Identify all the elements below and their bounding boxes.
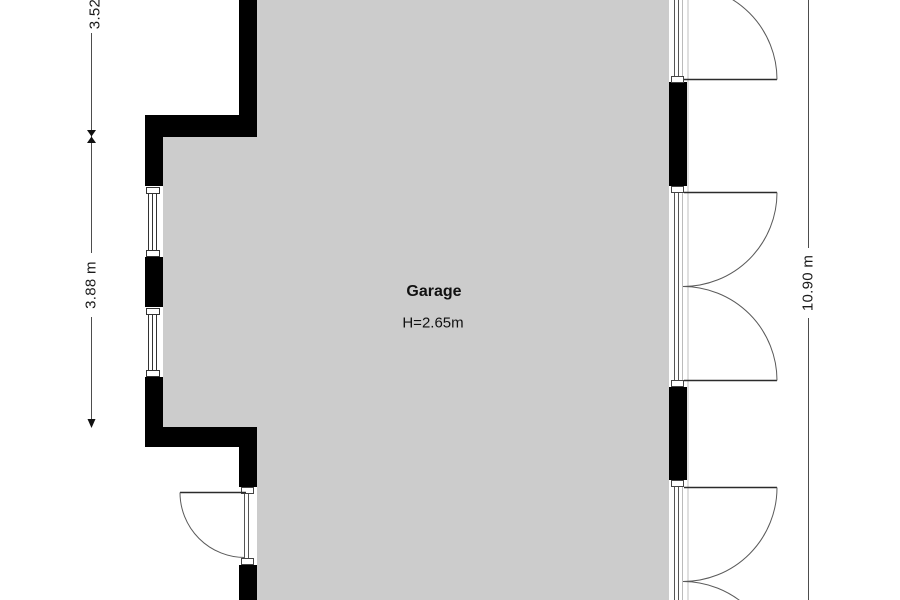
wall-right-lower bbox=[669, 387, 687, 480]
dimension-label-left-lower: 3.88 m bbox=[83, 261, 100, 309]
room-height-label: H=2.65m bbox=[402, 315, 463, 332]
door-right-bottom-lower-arc bbox=[683, 582, 777, 600]
door-right-middle-upper-arc bbox=[683, 193, 777, 287]
dimension-arrow-down bbox=[88, 419, 96, 428]
door-bottom-left-arc bbox=[180, 493, 245, 558]
wall-bottom-left-above-door bbox=[239, 447, 257, 487]
door-right-top-arc bbox=[683, 0, 777, 80]
door-right-bottom-opening bbox=[669, 480, 687, 600]
wall-left-between-windows bbox=[145, 257, 163, 307]
dimension-label-left-upper: 3.52 bbox=[87, 0, 104, 29]
garage-floor bbox=[257, 0, 669, 600]
dimension-marker-hourglass-bottom bbox=[87, 137, 96, 144]
wall-lower-step bbox=[145, 427, 257, 447]
garage-floor-extension bbox=[163, 137, 257, 427]
wall-left-upper bbox=[145, 137, 163, 186]
wall-left-lower bbox=[145, 377, 163, 427]
wall-bottom-left-below-door bbox=[239, 565, 257, 600]
window-upper-left-opening bbox=[145, 186, 163, 257]
room-name-label: Garage bbox=[406, 283, 461, 301]
dimension-label-right: 10.90 m bbox=[800, 255, 817, 311]
door-right-bottom-upper-arc bbox=[683, 488, 777, 582]
wall-upper-step bbox=[145, 115, 257, 137]
door-bottom-left-opening bbox=[239, 487, 257, 565]
window-lower-left-opening bbox=[145, 307, 163, 377]
door-right-middle-opening bbox=[669, 186, 687, 387]
right-wall-shadow bbox=[687, 0, 689, 600]
dimension-marker-hourglass-top bbox=[87, 130, 96, 137]
floor-plan: Garage H=2.65m 3.52 3.88 m 10.90 m bbox=[0, 0, 900, 600]
door-right-middle-lower-arc bbox=[683, 287, 777, 381]
wall-right-upper bbox=[669, 82, 687, 186]
door-right-top-opening bbox=[669, 0, 687, 82]
